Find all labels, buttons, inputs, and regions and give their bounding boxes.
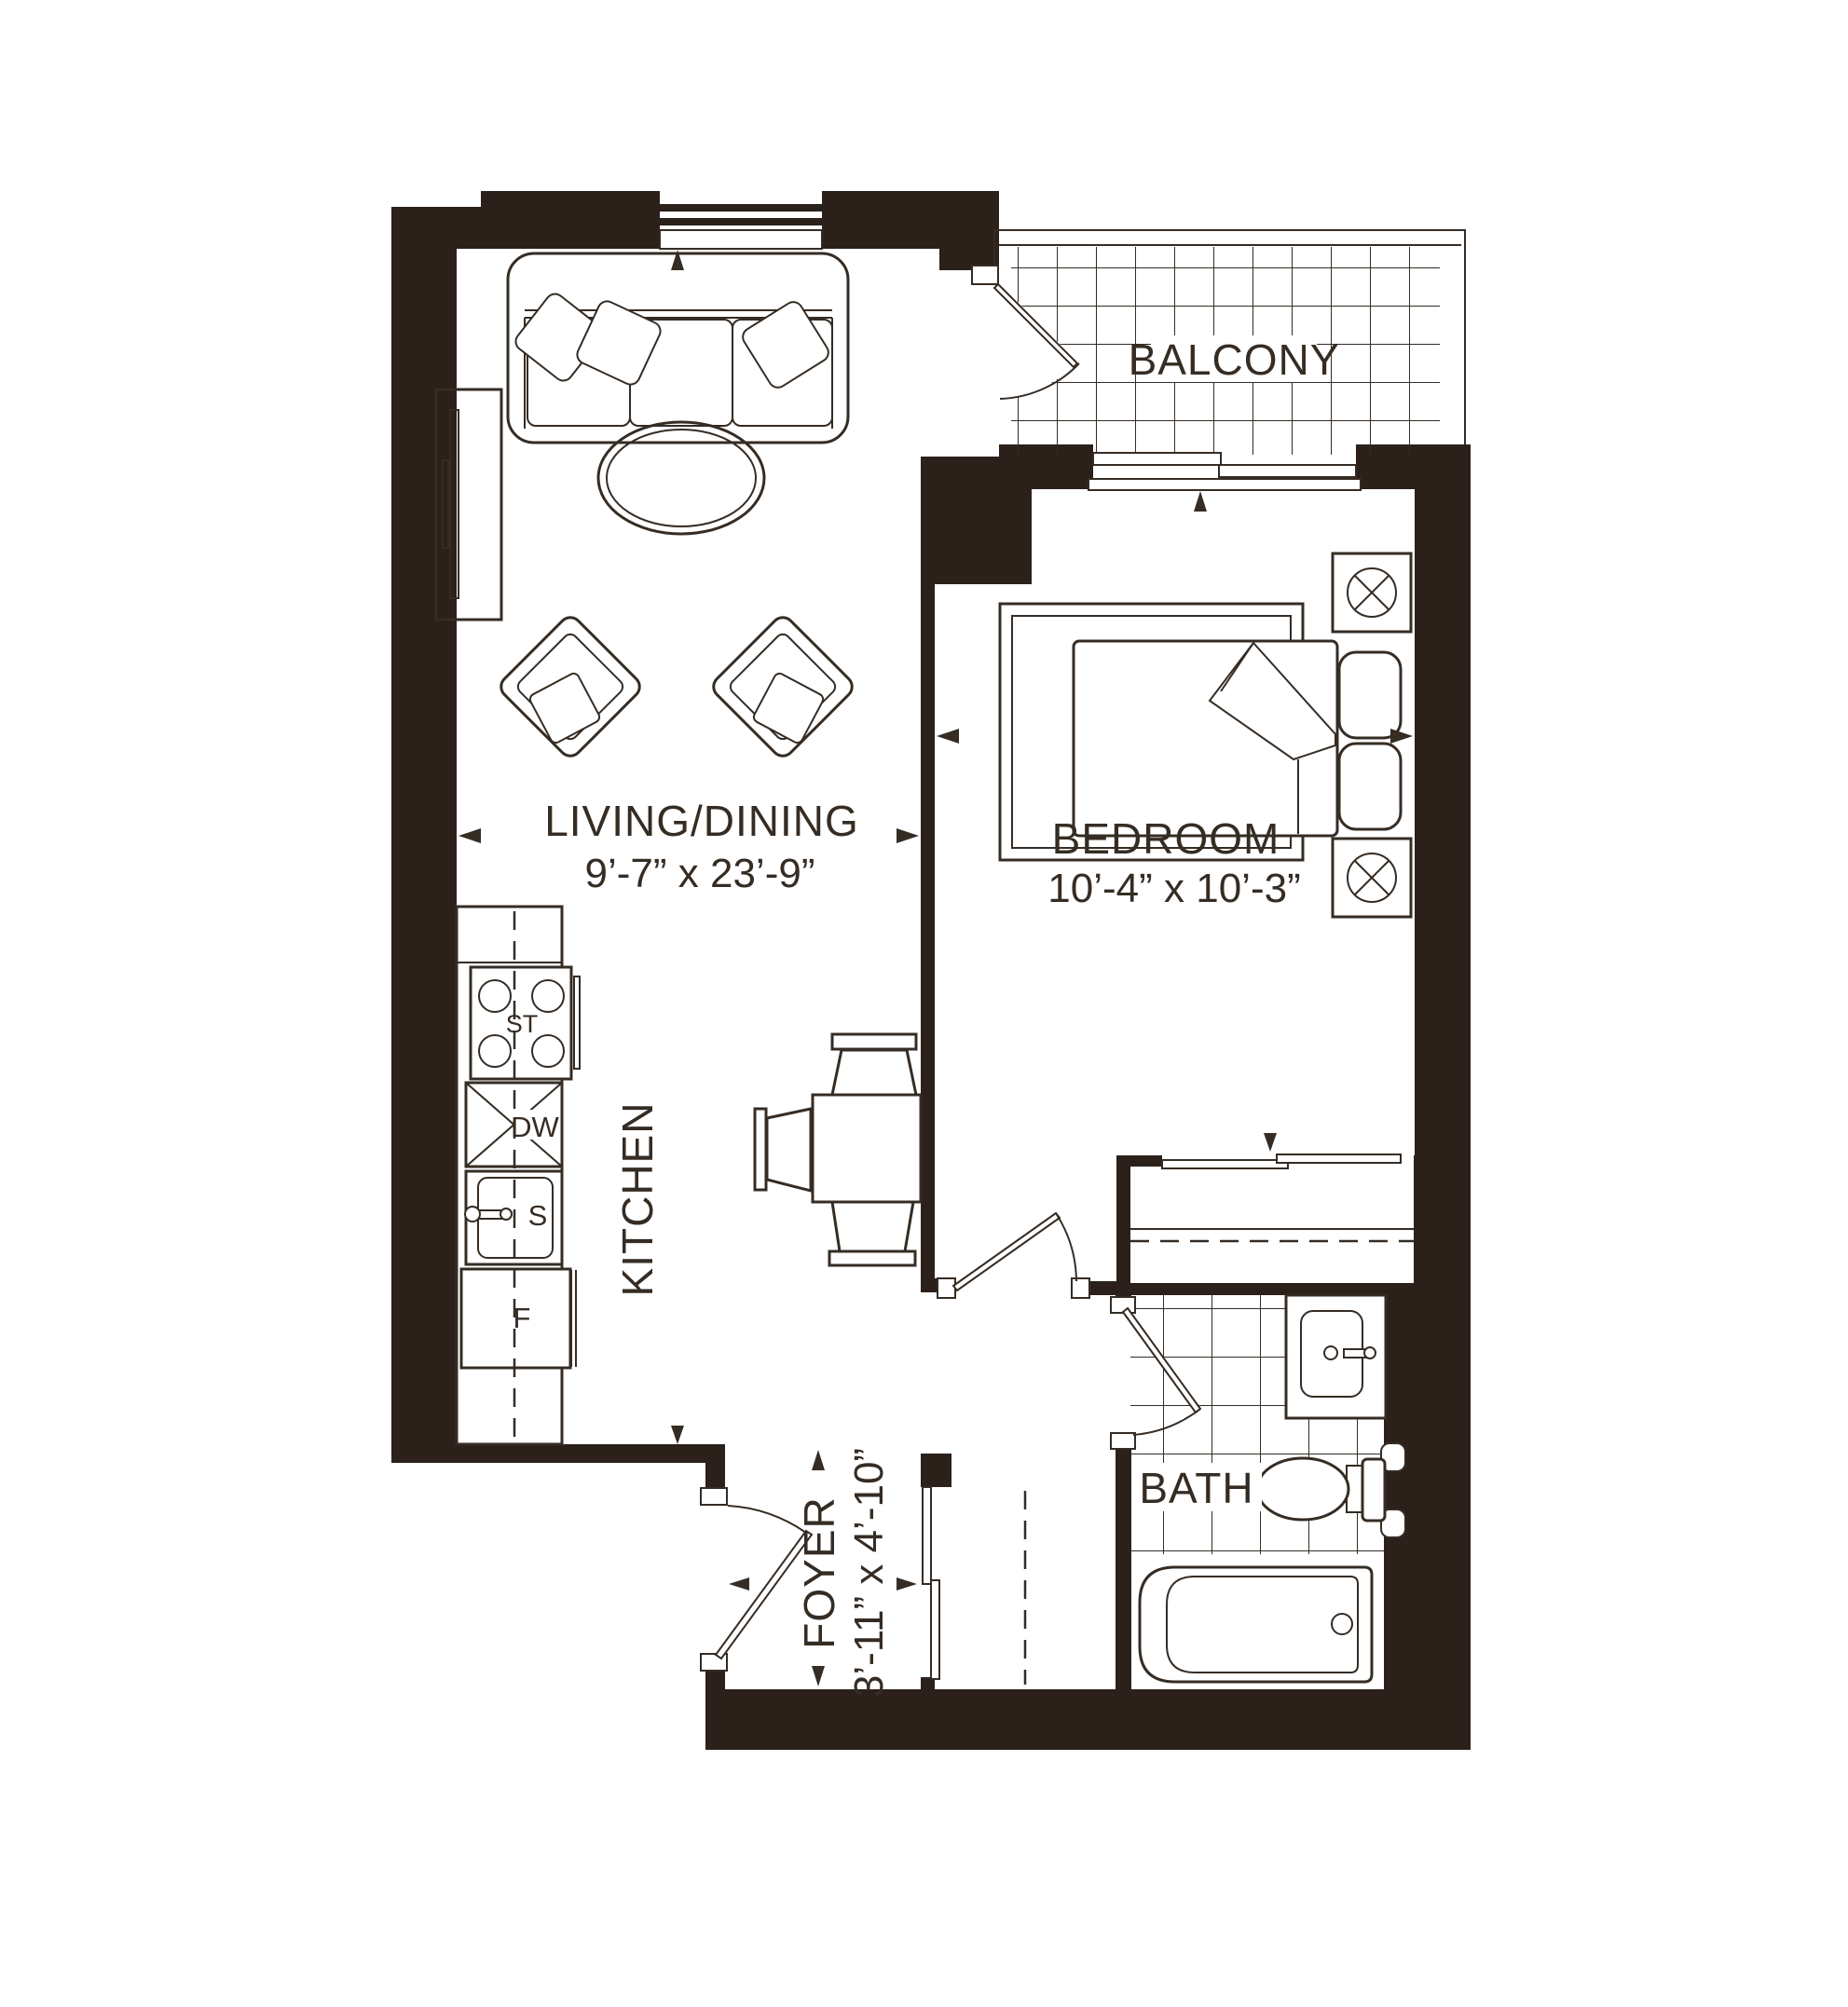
wall-closet-bath-divider bbox=[1116, 1283, 1415, 1295]
door-leaf bbox=[953, 1213, 1060, 1290]
living-dining-label: LIVING/DINING bbox=[544, 797, 859, 845]
sofa bbox=[508, 253, 848, 443]
door-hinge-post bbox=[1111, 1297, 1135, 1313]
wall-living-bedroom-divider bbox=[921, 584, 935, 1283]
room-kitchen: ST DW S F KITCHEN bbox=[457, 907, 684, 1444]
kitchen-label: KITCHEN bbox=[613, 1102, 662, 1297]
pillow bbox=[1339, 652, 1401, 738]
oval-table-inner bbox=[607, 430, 756, 526]
room-balcony: BALCONY bbox=[972, 230, 1465, 455]
pillow bbox=[1339, 744, 1401, 829]
bedroom-window bbox=[1088, 453, 1361, 512]
stove-handle bbox=[574, 976, 580, 1069]
wall-left bbox=[391, 249, 457, 1463]
wall-kitchen-bottom bbox=[391, 1444, 725, 1463]
dim-arrow-right bbox=[897, 1577, 917, 1591]
dim-arrow-down bbox=[812, 1666, 825, 1686]
dim-arrow-down bbox=[671, 1426, 684, 1444]
oval-table-outer bbox=[598, 422, 764, 534]
wall-foyer-closet-pier bbox=[921, 1454, 951, 1487]
bedroom-label: BEDROOM bbox=[1052, 814, 1280, 863]
room-bath: BATH bbox=[1111, 1295, 1405, 1682]
faucet-base bbox=[465, 1207, 480, 1222]
wall-top-left bbox=[481, 191, 660, 249]
wall-right-closet bbox=[1414, 1155, 1471, 1295]
window-sill bbox=[1088, 479, 1361, 490]
dining-chair-left bbox=[767, 1109, 811, 1191]
dining-chair-bottom-back bbox=[829, 1251, 915, 1265]
bed bbox=[1074, 641, 1401, 836]
wall-bath-left bbox=[1116, 1447, 1131, 1689]
window-glazing-bar bbox=[660, 218, 822, 225]
window-slider-panel bbox=[1219, 465, 1356, 477]
fridge: F bbox=[461, 1269, 576, 1368]
door-arc bbox=[1056, 1213, 1076, 1281]
dim-arrow-left bbox=[729, 1577, 749, 1591]
bedroom-door bbox=[938, 1213, 1089, 1298]
living-dining-dims: 9’-7” x 23’-9” bbox=[585, 851, 815, 896]
dishwasher-label: DW bbox=[511, 1111, 559, 1143]
door-jamb-post bbox=[1111, 1433, 1135, 1449]
dim-arrow-left bbox=[459, 828, 481, 843]
toilet-tank bbox=[1362, 1459, 1385, 1521]
window-glazing-bar bbox=[660, 204, 822, 212]
tub-outer bbox=[1140, 1567, 1372, 1682]
closet-slider-panel bbox=[923, 1487, 931, 1584]
sofa-pillow bbox=[739, 298, 831, 390]
wall-foyer-left-top bbox=[705, 1463, 725, 1491]
window-slider-panel bbox=[1093, 453, 1221, 465]
stove: ST bbox=[471, 967, 580, 1079]
accent-chair-right bbox=[709, 613, 856, 760]
door-hinge-post bbox=[938, 1278, 955, 1298]
dining-table bbox=[813, 1095, 921, 1202]
dim-arrow-up bbox=[812, 1450, 825, 1470]
foyer-closet bbox=[923, 1487, 1025, 1685]
closet-slider-panel bbox=[1162, 1160, 1288, 1168]
closet-marker-triangle bbox=[1264, 1133, 1277, 1152]
living-window bbox=[660, 204, 822, 270]
fridge-label: F bbox=[513, 1302, 531, 1334]
room-foyer: FOYER 3’-11” x 4’-10” bbox=[701, 1448, 1025, 1698]
room-bedroom: BEDROOM 10’-4” x 10’-3” bbox=[937, 553, 1413, 1298]
balcony-label: BALCONY bbox=[1129, 335, 1340, 384]
foyer-dims: 3’-11” x 4’-10” bbox=[846, 1448, 892, 1698]
toilet-bowl bbox=[1257, 1458, 1348, 1520]
bathtub bbox=[1140, 1567, 1372, 1682]
closet-slider-panel bbox=[1277, 1154, 1401, 1163]
nightstand-top bbox=[1333, 553, 1411, 632]
faucet-head bbox=[500, 1208, 512, 1220]
door-jamb-post bbox=[701, 1488, 727, 1505]
fridge-door-edge bbox=[571, 1270, 576, 1367]
dining-set bbox=[755, 1034, 921, 1265]
foyer-label: FOYER bbox=[795, 1496, 843, 1648]
bath-label: BATH bbox=[1139, 1464, 1253, 1512]
sofa-pillow bbox=[574, 298, 664, 388]
dining-chair-left-back bbox=[755, 1109, 766, 1190]
bedroom-dims: 10’-4” x 10’-3” bbox=[1047, 866, 1300, 911]
door-jamb-post bbox=[1072, 1278, 1089, 1298]
wall-top-right bbox=[822, 191, 999, 249]
wall-closet-left bbox=[1116, 1155, 1130, 1295]
wall-bottom bbox=[705, 1689, 1417, 1750]
dim-arrow-right bbox=[1390, 729, 1413, 744]
window-sill bbox=[660, 230, 822, 249]
balcony-door-hinge-post bbox=[972, 266, 998, 284]
wall-bedroom-door-right-stub bbox=[1088, 1281, 1116, 1295]
floor-plan: BALCONY bbox=[0, 0, 1848, 2007]
bedroom-closet bbox=[1130, 1133, 1414, 1241]
wall-top-left-step bbox=[391, 207, 481, 249]
closet-slider-panel bbox=[931, 1580, 939, 1679]
accent-chair-left bbox=[497, 613, 644, 760]
vanity-faucet-head bbox=[1364, 1347, 1376, 1358]
nightstand-bottom bbox=[1333, 839, 1411, 917]
dim-arrow-right bbox=[897, 828, 919, 843]
dining-chair-top-back bbox=[832, 1034, 916, 1049]
dining-chair-bottom bbox=[832, 1202, 913, 1251]
vanity bbox=[1286, 1295, 1386, 1418]
coffee-table bbox=[598, 422, 764, 534]
stove-label: ST bbox=[506, 1010, 539, 1038]
wall-right-bedroom bbox=[1415, 444, 1471, 1155]
sink-label: S bbox=[528, 1199, 548, 1232]
window-marker-triangle bbox=[1194, 491, 1207, 512]
dim-arrow-left bbox=[937, 729, 959, 744]
dining-chair-top bbox=[832, 1050, 916, 1095]
vanity-faucet-base bbox=[1324, 1346, 1337, 1359]
wall-closet-top-stub bbox=[1116, 1155, 1162, 1167]
